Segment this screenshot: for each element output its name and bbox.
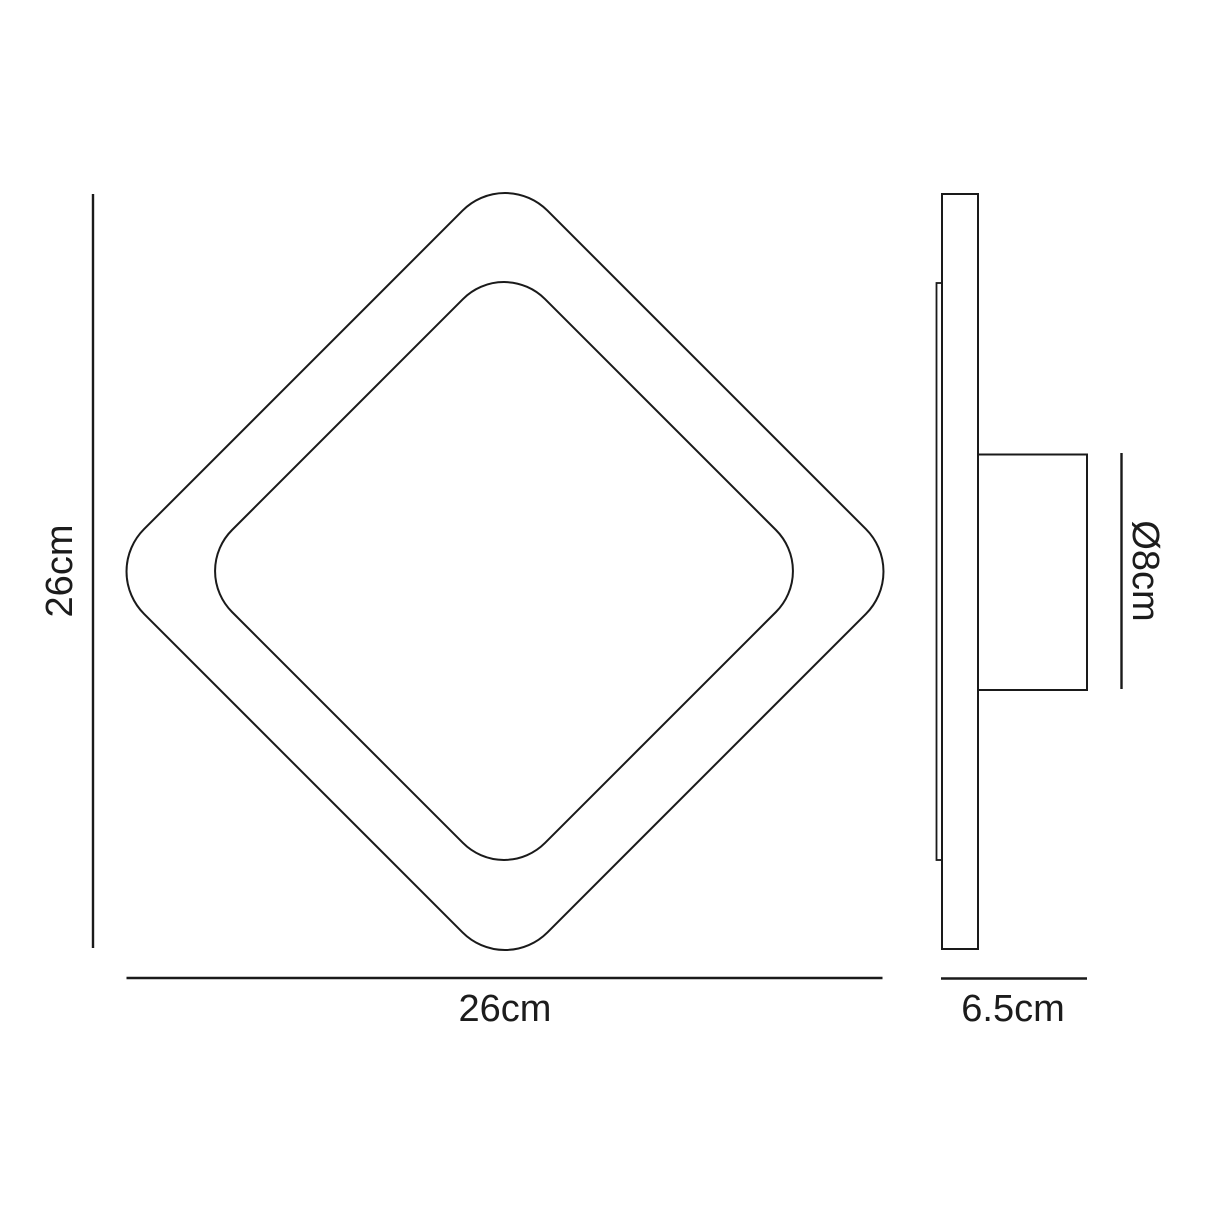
- height-dimension-label: 26cm: [39, 525, 81, 618]
- diagram-canvas: 26cm 26cm 6.5cm Ø8cm: [0, 0, 1214, 1214]
- side-view-driver-box: [978, 455, 1087, 691]
- side-view-profile: [942, 194, 978, 949]
- front-view: [102, 168, 909, 975]
- front-view-outer-frame: [102, 168, 909, 975]
- front-view-inner-panel: [191, 258, 817, 884]
- dimension-lines: [93, 194, 1122, 979]
- dimension-diagram: 26cm 26cm 6.5cm Ø8cm: [0, 0, 1214, 1214]
- side-view: [937, 194, 1088, 949]
- width-dimension-label: 26cm: [459, 988, 552, 1030]
- dimension-labels: 26cm 26cm 6.5cm Ø8cm: [39, 520, 1166, 1030]
- depth-dimension-label: 6.5cm: [961, 988, 1064, 1030]
- diameter-dimension-label: Ø8cm: [1124, 520, 1166, 621]
